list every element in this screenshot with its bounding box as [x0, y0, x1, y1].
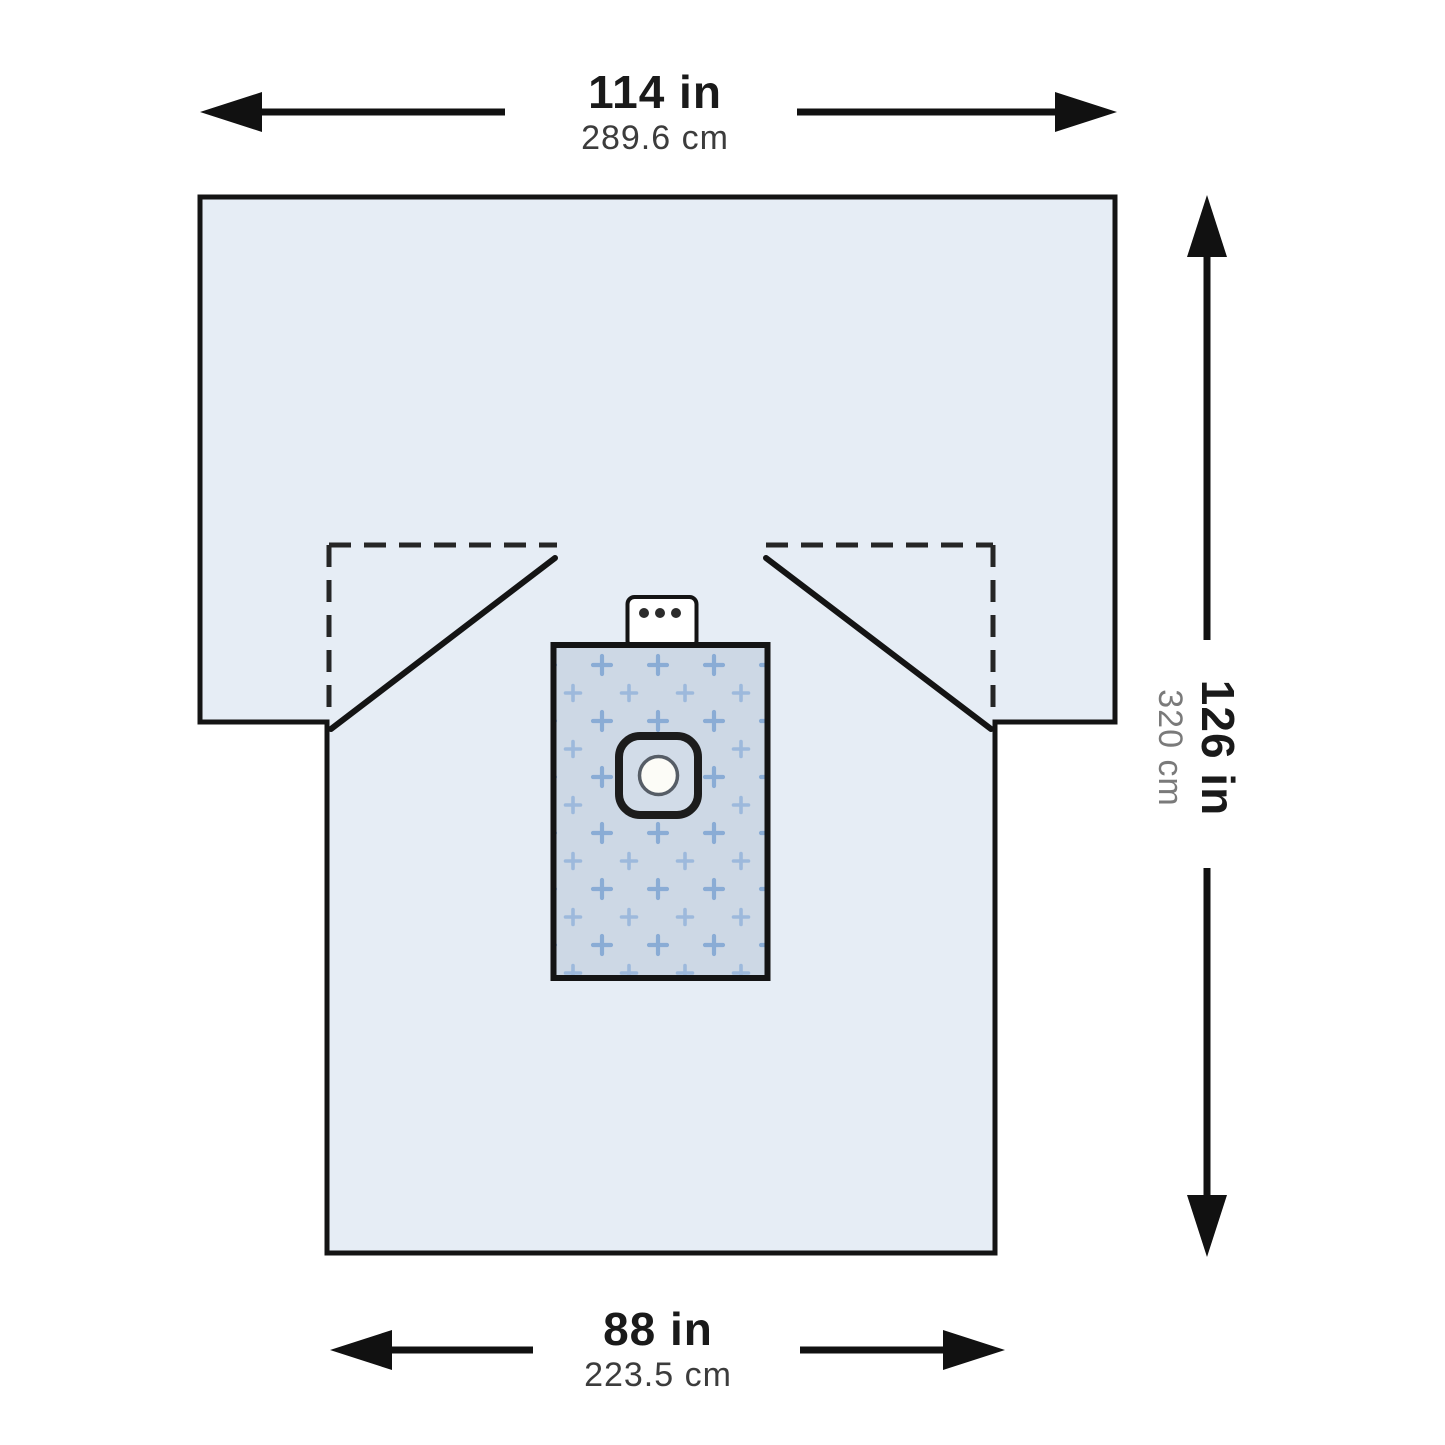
side-length-arrow-down	[1187, 868, 1227, 1257]
tube-holder-tab	[628, 597, 697, 648]
bottom-width-arrow-left	[330, 1330, 533, 1370]
tab-dot-3	[671, 608, 681, 618]
drape-diagram-svg	[0, 0, 1445, 1445]
top-width-arrow-left	[200, 92, 505, 132]
top-width-arrow-right	[797, 92, 1117, 132]
tab-dot-1	[639, 608, 649, 618]
tab-dot-2	[655, 608, 665, 618]
side-length-arrow-up	[1187, 195, 1227, 640]
bottom-width-arrow-right	[800, 1330, 1005, 1370]
drape-diagram-canvas: 114 in 289.6 cm 126 in 320 cm 88 in 223.…	[0, 0, 1445, 1445]
fenestration-hole	[640, 757, 678, 795]
